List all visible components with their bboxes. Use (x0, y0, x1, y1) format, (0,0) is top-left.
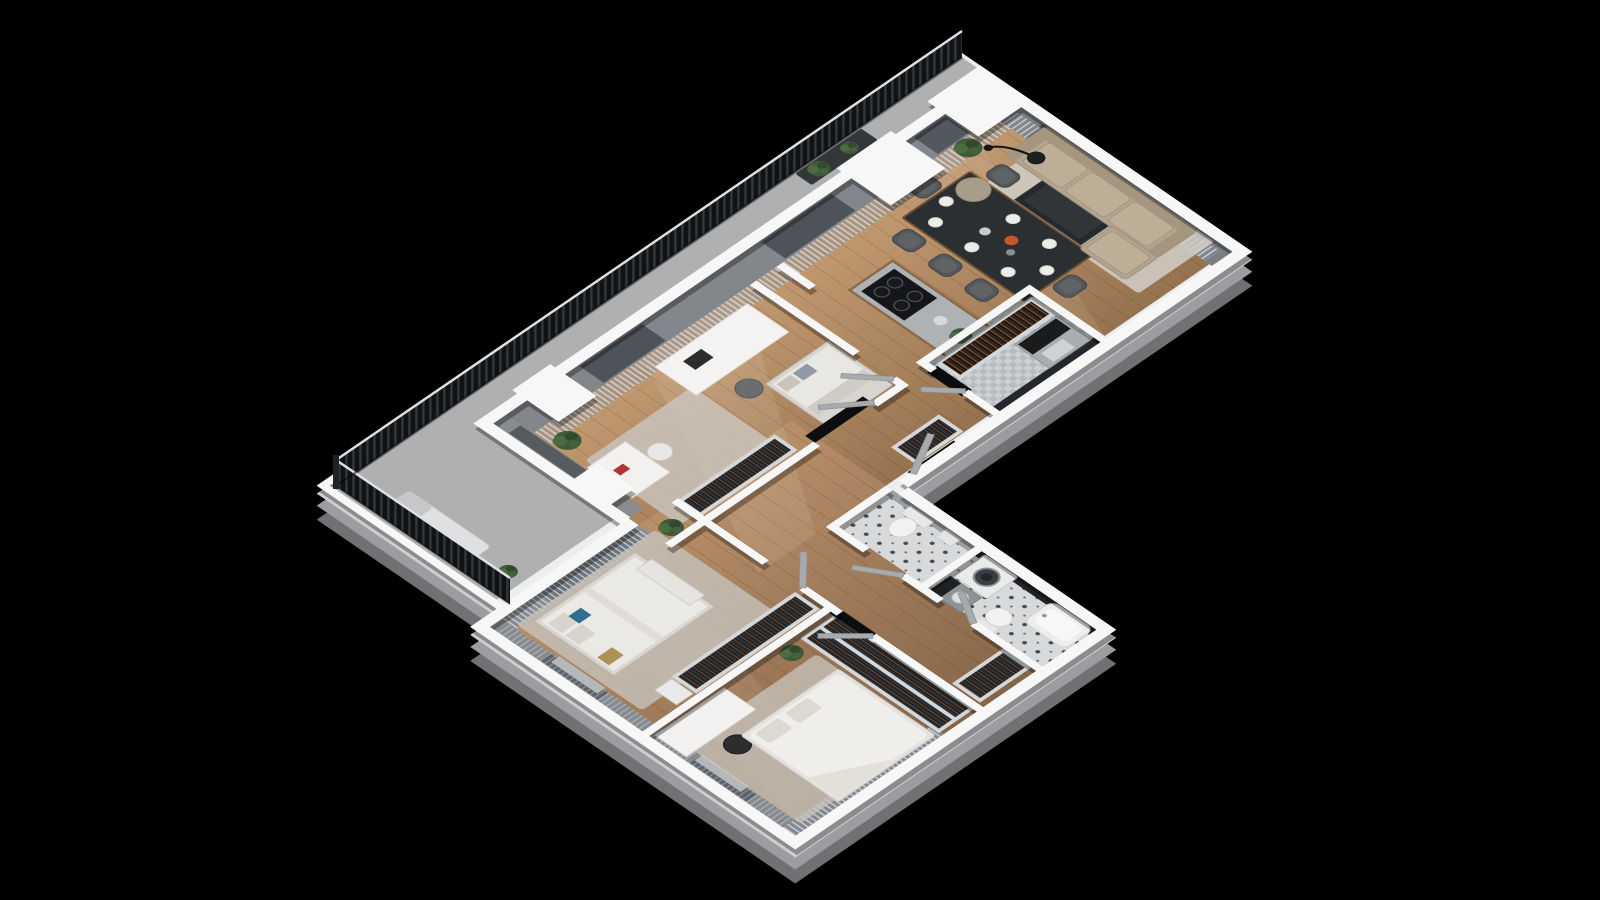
door-leaf (818, 634, 873, 639)
door-leaf (799, 552, 807, 588)
render-canvas: 3D isometric floor plan of an apartment … (0, 0, 1600, 900)
railing-corner-post (333, 455, 339, 489)
floorplan-svg: 3D isometric floor plan of an apartment … (0, 0, 1600, 900)
